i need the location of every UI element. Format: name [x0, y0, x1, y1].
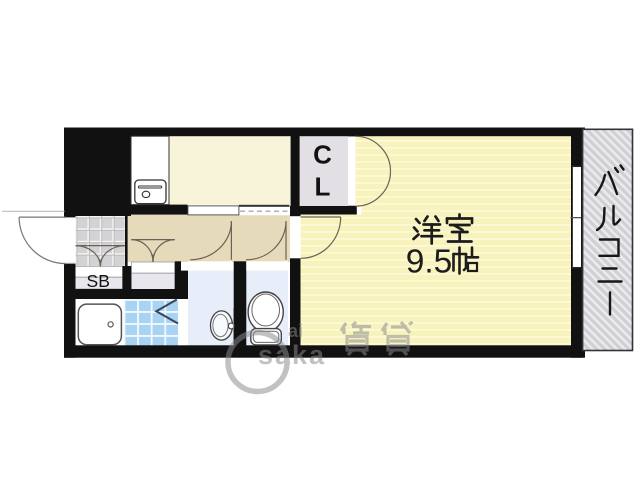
svg-text:ai: ai [288, 321, 303, 341]
svg-text:9.5: 9.5 [406, 244, 453, 281]
svg-text:C: C [313, 140, 332, 170]
svg-text:L: L [315, 172, 331, 202]
svg-text:SB: SB [87, 271, 110, 291]
svg-text:saka: saka [258, 340, 326, 370]
